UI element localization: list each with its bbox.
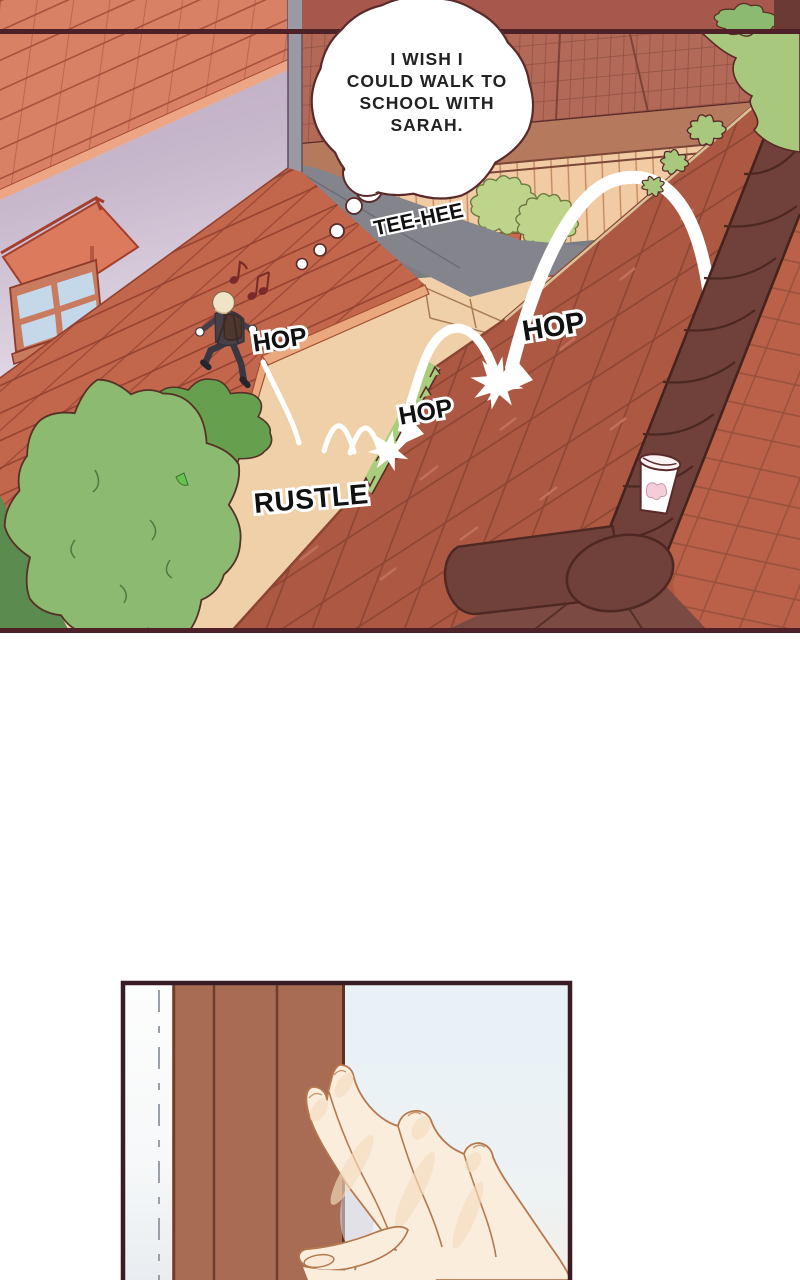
svg-text:SARAH.: SARAH. xyxy=(390,115,463,135)
svg-text:COULD WALK TO: COULD WALK TO xyxy=(347,71,507,91)
svg-text:SCHOOL WITH: SCHOOL WITH xyxy=(359,93,494,113)
svg-text:I WISH I: I WISH I xyxy=(390,49,463,69)
